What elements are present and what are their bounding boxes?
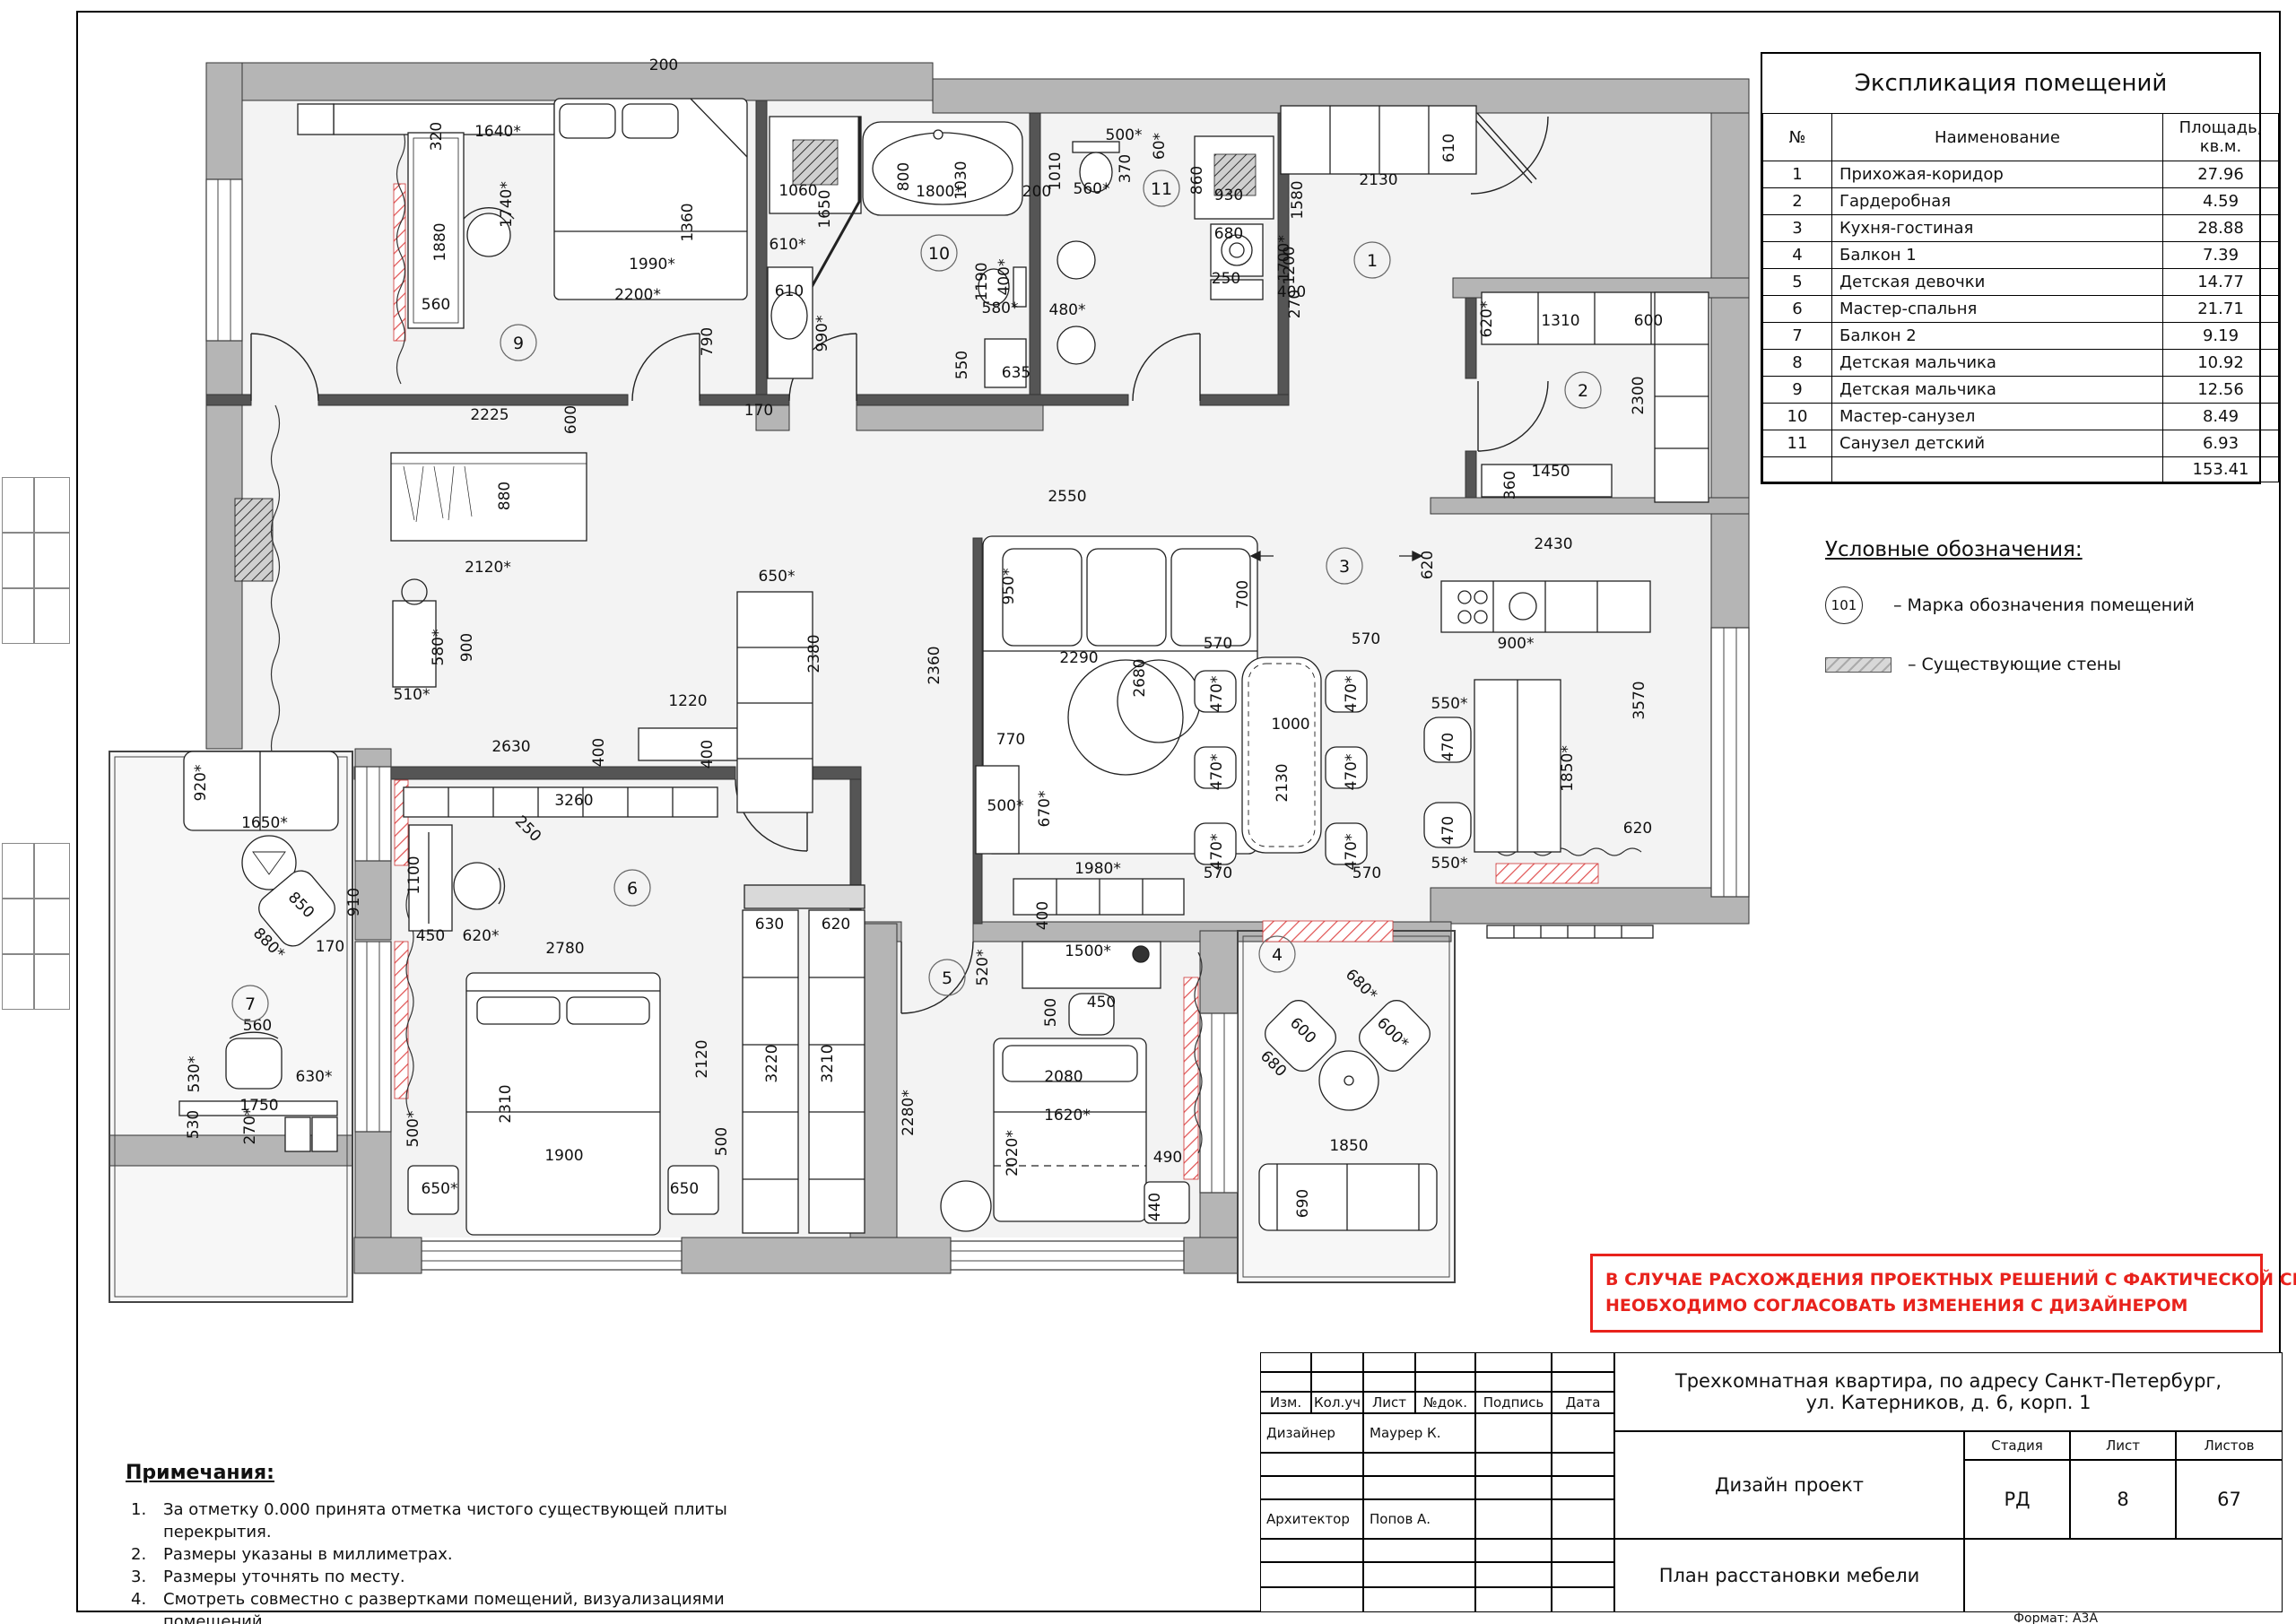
titleblock-cell [1475, 1499, 1552, 1539]
radiator-icon [1487, 925, 1653, 938]
dimension-label: 550* [1431, 855, 1468, 873]
titleblock-cell [1475, 1539, 1552, 1562]
dimension-label: 2380 [805, 634, 823, 673]
room-number: 9 [1763, 377, 1832, 404]
dimension-label: 1740* [498, 181, 516, 228]
tb-header-koluch: Кол.уч [1311, 1392, 1363, 1413]
dimension-label: 610 [775, 282, 804, 300]
dimension-label: 550 [953, 351, 971, 379]
room-number: 11 [1763, 430, 1832, 457]
dimension-label: 2130 [1359, 171, 1397, 189]
dimension-label: 3210 [819, 1044, 837, 1082]
dimension-label: 2020* [1004, 1130, 1022, 1177]
dimension-label: 880 [496, 482, 514, 510]
table-row: 8Детская мальчика10.92 [1763, 350, 2279, 377]
sheets-label: Листов [2176, 1431, 2283, 1460]
dimension-label: 400* [996, 259, 1013, 296]
sheet-name: План расстановки мебели [1614, 1539, 1964, 1612]
dimension-label: 570 [1352, 630, 1380, 648]
dimension-label: 600 [562, 405, 580, 434]
dimension-label: 2680 [1131, 658, 1149, 697]
room-marker-number: 5 [942, 968, 952, 988]
project-title-line1: Трехкомнатная квартира, по адресу Санкт-… [1675, 1370, 2222, 1392]
titleblock-cell [1363, 1476, 1475, 1499]
dimension-label: 530 [185, 1110, 203, 1139]
dimension-label: 1990* [629, 256, 675, 274]
sheet-number: 8 [2070, 1460, 2176, 1539]
room-number: 5 [1763, 269, 1832, 296]
dimension-label: 320 [428, 122, 446, 151]
titleblock-cell [1552, 1539, 1614, 1562]
room-number: 10 [1763, 404, 1832, 430]
room-number: 7 [1763, 323, 1832, 350]
dimension-label: 560* [1074, 180, 1110, 198]
notes: Примечания: За отметку 0.000 принята отм… [126, 1462, 825, 1624]
room-marker-number: 3 [1339, 557, 1350, 577]
dimension-label: 620 [822, 916, 850, 934]
table-icon [1319, 1051, 1378, 1110]
dimension-label: 2130 [1274, 763, 1291, 802]
dimension-label: 400 [1277, 283, 1306, 301]
coat-rack-icon [391, 453, 587, 541]
table-row: 3Кухня-гостиная28.88 [1763, 215, 2279, 242]
titleblock-cell [1415, 1352, 1475, 1372]
dimension-label: 610* [770, 236, 806, 254]
legend: Условные обозначения: 101 – Марка обозна… [1825, 538, 2256, 705]
dimension-label: 530* [186, 1056, 204, 1093]
room-number: 6 [1763, 296, 1832, 323]
dimension-label: 2120* [465, 559, 511, 577]
dimension-label: 620 [1419, 551, 1437, 579]
explication-table: Экспликация помещений № Наименование Пло… [1761, 52, 2261, 484]
titleblock-cell [1363, 1453, 1475, 1476]
tb-header-list: Лист [1363, 1392, 1415, 1413]
dimension-label: 580* [982, 300, 1019, 317]
dimension-label: 620 [1623, 820, 1652, 838]
room-number: 1 [1763, 161, 1832, 188]
architect-name: Попов А. [1363, 1499, 1475, 1539]
tb-header-dok: №док. [1415, 1392, 1475, 1413]
wardrobe-icon [809, 910, 865, 1233]
dimension-label: 1850* [1559, 745, 1577, 792]
dimension-label: 270* [241, 1108, 259, 1145]
warning-box: В СЛУЧАЕ РАСХО­ЖДЕНИЯ ПРОЕКТНЫХ РЕШЕНИЙ … [1590, 1254, 2263, 1333]
titleblock-cell [1475, 1476, 1552, 1499]
designer-name: Маурер К. [1363, 1413, 1475, 1453]
sofa-icon [1259, 1164, 1437, 1230]
legend-marker-label: – Марка обозначения помещений [1893, 595, 2195, 615]
col-header-name: Наименование [1832, 114, 2163, 161]
titleblock-cell [1363, 1372, 1415, 1392]
room-marker-number: 11 [1151, 179, 1172, 199]
dimension-label: 2300 [1630, 376, 1648, 414]
room-name: Гардеробная [1832, 188, 2163, 215]
dimension-label: 1220 [668, 692, 707, 710]
dimension-label: 440 [1146, 1193, 1164, 1221]
dimension-label: 250 [1212, 270, 1240, 288]
dimension-label: 470* [1343, 676, 1361, 713]
sheet-label: Лист [2070, 1431, 2176, 1460]
dimension-label: 630 [755, 916, 784, 934]
titleblock-cell [1260, 1539, 1363, 1562]
titleblock-cell [1415, 1372, 1475, 1392]
room-area: 28.88 [2163, 215, 2279, 242]
room-area: 8.49 [2163, 404, 2279, 430]
room-name: Детская девочки [1832, 269, 2163, 296]
dimension-label: 1200 [1281, 246, 1299, 284]
room-name: Мастер-санузел [1832, 404, 2163, 430]
dimension-label: 3260 [554, 792, 593, 810]
titleblock-cell [1475, 1352, 1552, 1372]
dimension-label: 790 [699, 327, 717, 356]
table-row: 2Гардеробная4.59 [1763, 188, 2279, 215]
dimension-label: 490 [1153, 1149, 1182, 1167]
titleblock-cell: Трехкомнатная квартира, по адресу Санкт-… [1614, 1352, 2283, 1431]
tb-header-izm: Изм. [1260, 1392, 1311, 1413]
titleblock-cell [1260, 1352, 1311, 1372]
designer-label: Дизайнер [1260, 1413, 1363, 1453]
dimension-label: 2630 [491, 738, 530, 756]
titleblock-cell [1964, 1539, 2283, 1612]
dimension-label: 930 [1214, 187, 1243, 204]
dimension-label: 1580 [1289, 180, 1307, 219]
dimension-label: 200 [649, 56, 678, 74]
titleblock-cell [1363, 1352, 1415, 1372]
sink-icon [1057, 326, 1095, 364]
dimension-label: 500 [713, 1127, 731, 1156]
dimension-label: 650* [422, 1180, 458, 1198]
dimension-label: 990* [813, 316, 831, 352]
dimension-label: 3220 [763, 1044, 781, 1082]
room-number: 3 [1763, 215, 1832, 242]
dimension-label: 2120 [693, 1039, 711, 1078]
room-number: 4 [1763, 242, 1832, 269]
note-item: Размеры указаны в миллиметрах. [126, 1543, 825, 1566]
sink-icon [1057, 241, 1095, 279]
legend-title: Условные обозначения: [1825, 538, 2256, 561]
room-name: Кухня-гостиная [1832, 215, 2163, 242]
dimension-label: 2280* [900, 1090, 918, 1136]
dimension-label: 635 [1002, 364, 1031, 382]
dimension-label: 1880 [431, 222, 449, 261]
titleblock-cell [1363, 1539, 1475, 1562]
dimension-label: 1650 [816, 189, 834, 228]
room-area: 4.59 [2163, 188, 2279, 215]
dimension-label: 1620* [1044, 1107, 1091, 1125]
dimension-label: 1900 [544, 1147, 583, 1165]
project-title-line2: ул. Катерников, д. 6, корп. 1 [1806, 1392, 2092, 1413]
dimension-label: 470* [1208, 676, 1226, 713]
dimension-label: 2360 [926, 646, 944, 684]
dimension-label: 470 [1439, 816, 1457, 845]
dimension-label: 2225 [470, 406, 509, 424]
table-row: 4Балкон 17.39 [1763, 242, 2279, 269]
col-header-num: № [1763, 114, 1832, 161]
dimension-label: 600 [1634, 312, 1663, 330]
titleblock-cell [1552, 1476, 1614, 1499]
table-row: 6Мастер-спальня21.71 [1763, 296, 2279, 323]
sheets-total: 67 [2176, 1460, 2283, 1539]
room-area: 10.92 [2163, 350, 2279, 377]
dimension-label: 1310 [1541, 312, 1579, 330]
dimension-label: 400 [590, 738, 608, 767]
dimension-label: 170 [744, 402, 773, 420]
note-item: Смотреть совместно с развертками помещен… [126, 1588, 825, 1624]
titleblock-cell [1475, 1413, 1552, 1453]
room-name: Детская мальчика [1832, 350, 2163, 377]
titleblock-cell [1311, 1372, 1363, 1392]
dimension-label: 470* [1208, 754, 1226, 791]
room-marker-number: 1 [1367, 251, 1378, 271]
titleblock-cell [1260, 1476, 1363, 1499]
titleblock-cell [1260, 1453, 1363, 1476]
dimension-label: 900* [1498, 635, 1535, 653]
room-number: 2 [1763, 188, 1832, 215]
stage-label: Стадия [1964, 1431, 2070, 1460]
stage-value: РД [1964, 1460, 2070, 1539]
note-item: Размеры уточнять по месту. [126, 1566, 825, 1588]
dimension-label: 470* [1343, 754, 1361, 791]
dimension-label: 630* [296, 1068, 333, 1086]
dimension-label: 610 [1440, 134, 1458, 162]
dimension-label: 570 [1204, 864, 1232, 882]
room-name: Балкон 1 [1832, 242, 2163, 269]
dimension-label: 680 [1214, 225, 1243, 243]
dimension-label: 650 [670, 1180, 699, 1198]
dimension-label: 500* [404, 1111, 422, 1148]
titleblock-cell [1552, 1372, 1614, 1392]
dimension-label: 1100 [405, 855, 423, 894]
dimension-label: 2080 [1044, 1068, 1083, 1086]
chair-icon [454, 863, 500, 909]
tb-header-data: Дата [1552, 1392, 1614, 1413]
titleblock-cell [1552, 1453, 1614, 1476]
dimension-label: 450 [1087, 994, 1116, 1012]
dimension-label: 2430 [1534, 535, 1572, 553]
dimension-label: 1640* [474, 123, 521, 141]
table-row: 7Балкон 29.19 [1763, 323, 2279, 350]
dimension-label: 910 [345, 888, 363, 916]
dimension-label: 620* [463, 927, 500, 945]
dimension-label: 2780 [545, 940, 584, 958]
tb-header-podpis: Подпись [1475, 1392, 1552, 1413]
dimension-label: 1010 [1047, 152, 1065, 190]
room-number: 8 [1763, 350, 1832, 377]
room-name: Мастер-спальня [1832, 296, 2163, 323]
dimension-label: 400 [1034, 901, 1052, 930]
dimension-label: 690 [1294, 1189, 1312, 1218]
room-marker-number: 7 [245, 994, 256, 1014]
format-label: Формат: А3А [2013, 1611, 2098, 1624]
dimension-label: 520* [974, 950, 992, 986]
room-name: Прихожая-коридор [1832, 161, 2163, 188]
dimension-label: 450 [416, 927, 445, 945]
warning-line2: НЕОБХОДИМО СОГЛАСОВАТЬ ИЗМЕНЕНИЯ С ДИЗАЙ… [1605, 1293, 2248, 1319]
titleblock-cell [1363, 1587, 1475, 1612]
titleblock-cell [1260, 1372, 1311, 1392]
room-area: 27.96 [2163, 161, 2279, 188]
room-area: 12.56 [2163, 377, 2279, 404]
dimension-label: 900 [458, 633, 476, 662]
room-name: Санузел детский [1832, 430, 2163, 457]
dimension-label: 1190 [973, 262, 991, 300]
room-area: 14.77 [2163, 269, 2279, 296]
titleblock-cell [1260, 1562, 1363, 1587]
titleblock-cell [1475, 1372, 1552, 1392]
dimension-label: 800 [895, 162, 913, 191]
dimension-label: 1980* [1074, 860, 1121, 878]
dimension-label: 1850 [1329, 1137, 1368, 1155]
dimension-label: 920* [192, 765, 210, 802]
notes-title: Примечания: [126, 1462, 825, 1484]
dimension-label: 1360 [679, 203, 697, 241]
dimension-label: 500 [1042, 998, 1060, 1027]
dimension-label: 2290 [1059, 649, 1098, 667]
dining-table-icon [1242, 657, 1321, 853]
dimension-label: 570 [1352, 864, 1381, 882]
dimension-label: 3570 [1631, 681, 1648, 719]
dimension-label: 650* [759, 568, 796, 586]
explication-title: Экспликация помещений [1762, 54, 2259, 113]
dimension-label: 370 [1117, 154, 1135, 183]
dimension-label: 2550 [1048, 488, 1086, 506]
dimension-label: 950* [1000, 569, 1018, 605]
room-area: 9.19 [2163, 323, 2279, 350]
col-header-area: Площадь, кв.м. [2163, 114, 2279, 161]
table-row: 10Мастер-санузел8.49 [1763, 404, 2279, 430]
note-item: За отметку 0.000 принята отметка чистого… [126, 1498, 825, 1543]
dimension-label: 860 [1188, 166, 1206, 195]
dimension-label: 510* [394, 686, 430, 704]
room-marker-number: 9 [513, 334, 524, 353]
dimension-label: 560 [422, 296, 450, 314]
total-area: 153.41 [2163, 457, 2279, 482]
existing-wall-swatch [1825, 657, 1892, 673]
room-marker-number: 2 [1578, 381, 1588, 401]
titleblock-cell [1552, 1587, 1614, 1612]
dimension-label: 700 [1234, 580, 1252, 609]
dimension-label: 1450 [1531, 463, 1570, 481]
dimension-label: 1650* [241, 814, 288, 832]
titleblock-cell [1475, 1562, 1552, 1587]
dimension-label: 1030 [952, 161, 970, 199]
titleblock-cell [1552, 1562, 1614, 1587]
shoe-cabinet-icon [639, 728, 746, 760]
dimension-label: 670* [1036, 791, 1054, 828]
dimension-label: 480* [1049, 301, 1086, 319]
dimension-label: 620* [1478, 301, 1496, 338]
room-marker-symbol: 101 [1825, 586, 1863, 624]
room-name: Детская мальчика [1832, 377, 2163, 404]
titleblock-cell [1552, 1413, 1614, 1453]
dimension-label: 1060 [778, 182, 817, 200]
dimension-label: 570 [1204, 635, 1232, 653]
table-row: 5Детская девочки14.77 [1763, 269, 2279, 296]
architect-label: Архитектор [1260, 1499, 1363, 1539]
room-area: 7.39 [2163, 242, 2279, 269]
titleblock-cell [1552, 1499, 1614, 1539]
dimension-label: 400 [699, 740, 717, 769]
titleblock-cell [1475, 1453, 1552, 1476]
dimension-label: 500* [1106, 126, 1143, 144]
warning-line1: В СЛУЧАЕ РАСХО­ЖДЕНИЯ ПРОЕКТНЫХ РЕШЕНИЙ … [1605, 1267, 2248, 1293]
titleblock-cell [1552, 1352, 1614, 1372]
drawing-sheet: { "explication": { "title": "Экспликация… [0, 0, 2296, 1624]
ball-chair-icon [941, 1181, 991, 1231]
dimension-label: 770 [996, 731, 1025, 749]
room-marker-number: 6 [627, 879, 638, 899]
titleblock-cell [1311, 1352, 1363, 1372]
dimension-label: 2200* [614, 286, 661, 304]
dimension-label: 550* [1431, 695, 1468, 713]
table-row: 9Детская мальчика12.56 [1763, 377, 2279, 404]
table-row: 1Прихожая-коридор27.96 [1763, 161, 2279, 188]
dimension-label: 500* [987, 797, 1024, 815]
dimension-label: 170 [316, 938, 344, 956]
room-area: 21.71 [2163, 296, 2279, 323]
dimension-label: 1000 [1271, 716, 1309, 734]
armchair-icon [226, 1038, 282, 1089]
closet-icon [737, 592, 813, 812]
room-area: 6.93 [2163, 430, 2279, 457]
title-block: Изм. Кол.уч Лист №док. Подпись Дата Диза… [1260, 1352, 2283, 1612]
titleblock-cell [1475, 1587, 1552, 1612]
room-marker-number: 10 [928, 244, 950, 264]
dimension-label: 60* [1151, 133, 1169, 160]
dimension-label: 580* [430, 630, 448, 666]
legend-walls-label: – Существующие стены [1908, 655, 2121, 674]
room-name: Балкон 2 [1832, 323, 2163, 350]
room-marker-number: 4 [1272, 945, 1283, 965]
dimension-label: 2310 [497, 1084, 515, 1123]
dimension-label: 470 [1439, 733, 1457, 761]
dimension-label: 1500* [1065, 942, 1111, 960]
titleblock-cell [1260, 1587, 1363, 1612]
doc-type: Дизайн проект [1614, 1431, 1964, 1539]
dimension-label: 360 [1501, 471, 1519, 499]
titleblock-cell [1363, 1562, 1475, 1587]
table-row: 11Санузел детский6.93 [1763, 430, 2279, 457]
